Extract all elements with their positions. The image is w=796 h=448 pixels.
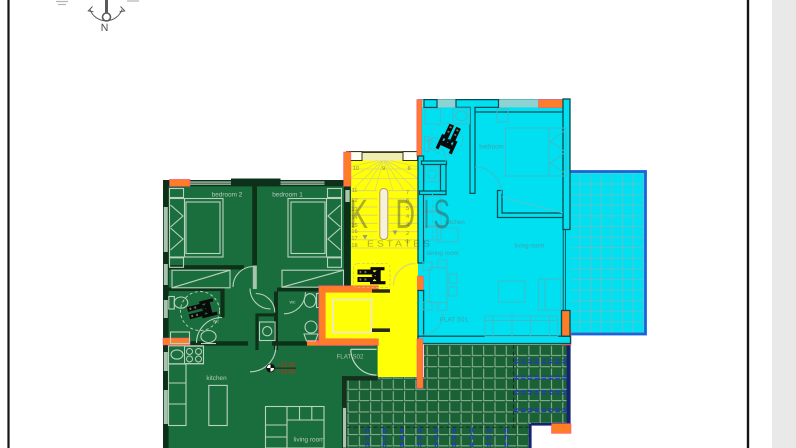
svg-text:K: K [350,191,369,237]
svg-text:S: S [434,191,451,237]
svg-text:wc: wc [289,300,296,306]
svg-text:bedroom: bedroom [479,144,503,151]
svg-text:+16.85: +16.85 [277,362,296,369]
svg-text:wc: wc [213,319,220,325]
svg-text:9: 9 [382,166,385,172]
svg-text:FLAT 502: FLAT 502 [336,354,364,361]
svg-text:kitchen: kitchen [206,375,227,382]
svg-text:bedroom 2: bedroom 2 [212,192,243,199]
svg-text:D: D [396,191,416,237]
svg-text:I: I [424,191,430,237]
svg-text:+16.85: +16.85 [277,369,296,376]
svg-text:bedroom 1: bedroom 1 [272,192,303,199]
svg-text:N: N [101,22,109,34]
svg-text:FLAT 501: FLAT 501 [440,317,469,324]
svg-text:dining room: dining room [426,250,458,257]
svg-text:living room: living room [515,243,545,250]
svg-text:8: 8 [407,166,410,172]
svg-text:10: 10 [353,166,359,172]
svg-text:E S T A T E S: E S T A T E S [367,239,430,249]
svg-text:living room: living room [294,437,325,444]
svg-text:18: 18 [351,243,357,249]
